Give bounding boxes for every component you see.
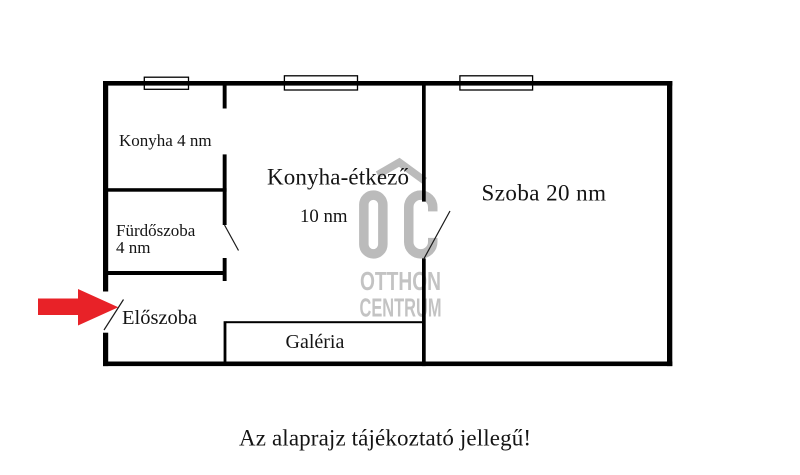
svg-text:Az alaprajz tájékoztató jelleg: Az alaprajz tájékoztató jellegű! [239,426,531,451]
svg-text:Galéria: Galéria [286,331,345,353]
svg-text:Konyha-étkező: Konyha-étkező [267,165,409,190]
svg-text:Szoba 20 nm: Szoba 20 nm [482,181,607,206]
svg-text:CENTRUM: CENTRUM [360,295,442,323]
svg-text:4 nm: 4 nm [116,238,150,257]
svg-text:OTTHON: OTTHON [360,268,441,296]
svg-text:Konyha 4 nm: Konyha 4 nm [119,131,212,150]
svg-text:Előszoba: Előszoba [122,307,197,329]
svg-text:10 nm: 10 nm [300,206,348,227]
